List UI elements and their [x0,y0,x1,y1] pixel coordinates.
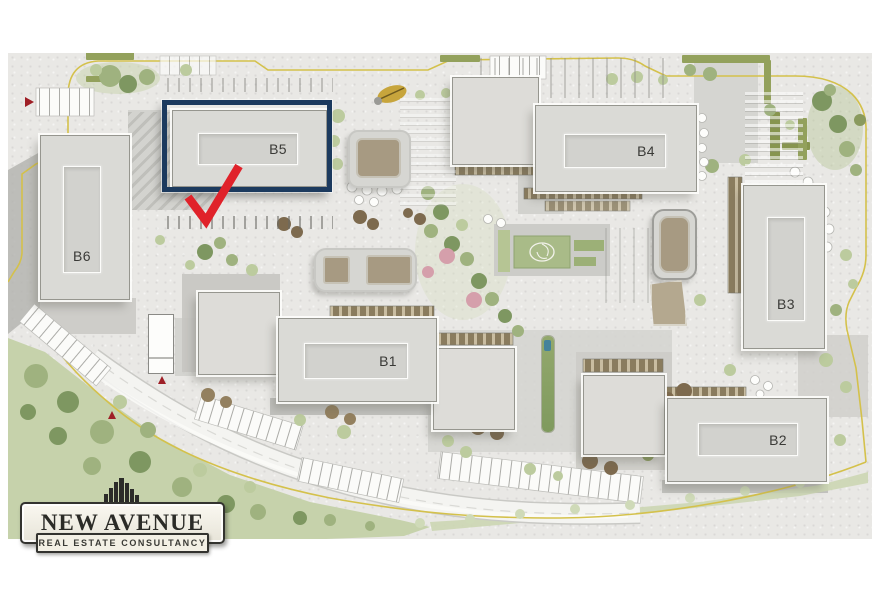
page-margin [0,0,8,600]
green-median [542,336,554,432]
entrance-arrow-icon [158,376,166,384]
logo-tagline-bar: REAL ESTATE CONSULTANCY [36,533,209,553]
water-feature [544,340,551,351]
building-b1-roof: B1 [304,343,408,379]
building-block [583,375,665,455]
building-b2: B2 [667,398,827,482]
building-b3-label: B3 [777,296,795,312]
building-block [452,77,539,165]
building-b1: B1 [278,318,437,402]
building-b1-label: B1 [379,353,397,369]
emblem-garden [494,224,610,276]
page-margin [0,0,880,53]
pavilion-roof [659,216,690,273]
entrance-arrow-icon [25,97,34,107]
building-b4-label: B4 [637,143,655,159]
logo-tagline: REAL ESTATE CONSULTANCY [39,538,207,548]
pavilion-oval [652,209,697,280]
building-block [198,292,280,375]
building-b6: B6 [40,135,130,300]
pavilion-roof [366,255,412,285]
pavilion-roof [356,138,401,178]
building-b6-roof: B6 [63,166,101,273]
ramp-structure [650,280,687,326]
new-avenue-logo: NEW AVENUE REAL ESTATE CONSULTANCY [20,476,225,556]
pavilion-square [348,130,411,188]
building-b3: B3 [743,185,825,349]
page-margin [872,0,880,600]
building-b2-roof: B2 [698,423,798,456]
selection-arrow-icon [170,150,260,240]
site-plan-screenshot: B6 B5 B4 B3 B1 B2 [0,0,880,600]
building-b4-roof: B4 [564,134,666,168]
building-b3-roof: B3 [767,217,805,321]
building-b2-label: B2 [769,432,787,448]
pavilion-roof [323,256,350,284]
pavilion-long [314,248,417,292]
entrance-gate [148,314,174,374]
building-b4: B4 [535,105,697,192]
building-block [433,348,515,430]
building-b6-label: B6 [73,248,91,264]
